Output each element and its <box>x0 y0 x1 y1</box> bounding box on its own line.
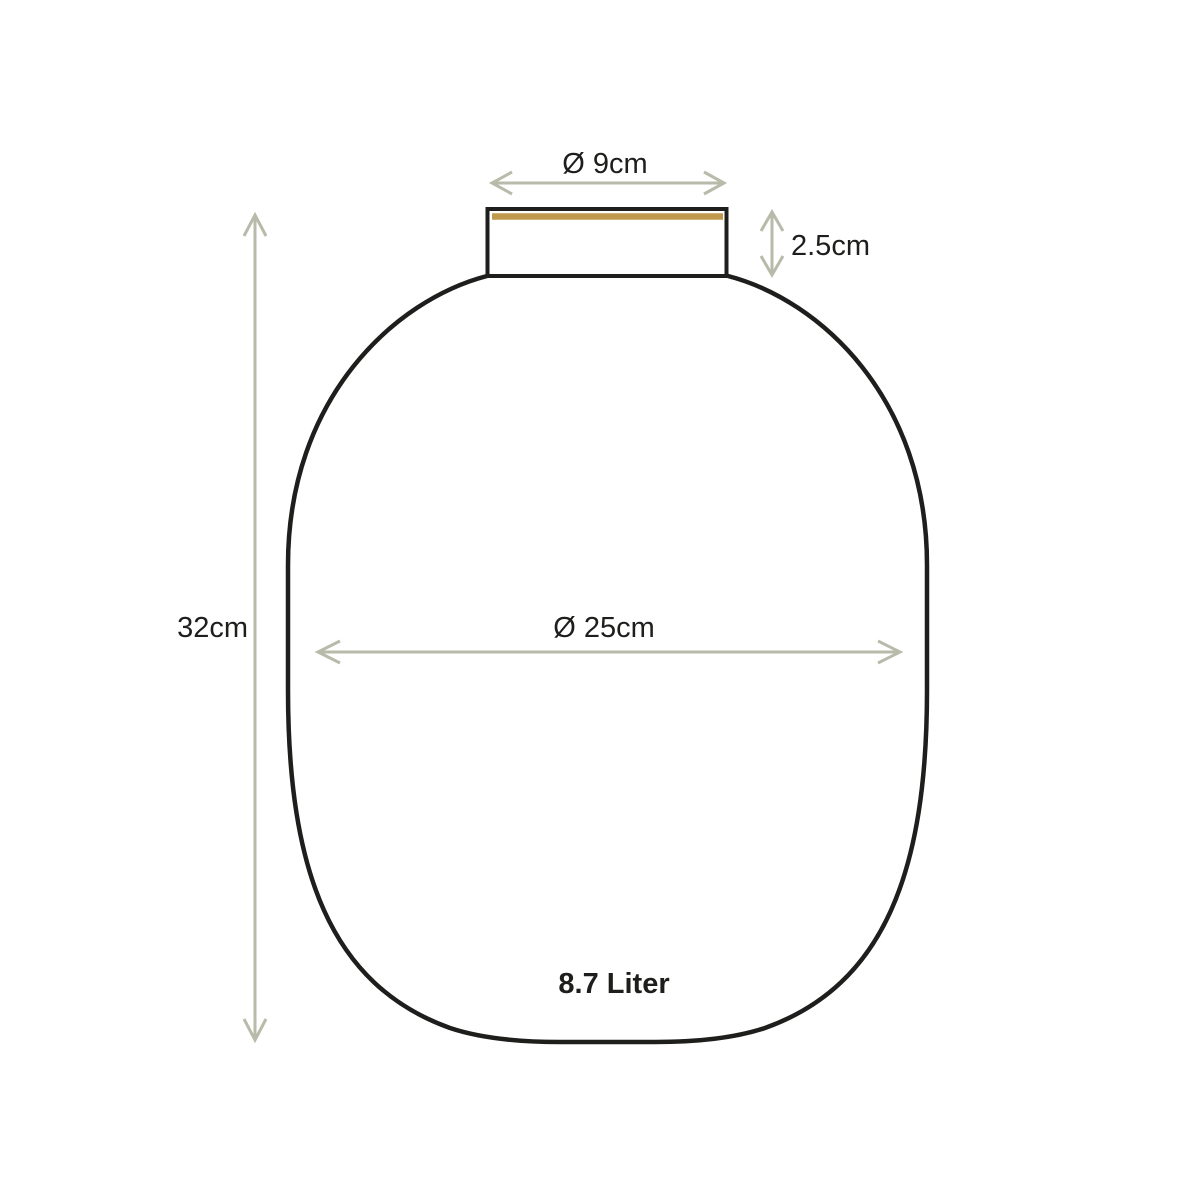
opening-diameter-label: Ø 9cm <box>562 148 647 180</box>
diagram-canvas: Ø 9cm 2.5cm 32cm Ø 25cm 8.7 Liter <box>0 0 1200 1200</box>
neck-height-arrow <box>761 212 783 275</box>
neck-height-label: 2.5cm <box>791 230 870 262</box>
body-diameter-label: Ø 25cm <box>553 612 655 644</box>
body-diameter-arrow <box>318 641 900 663</box>
vase-dimension-diagram: Ø 9cm 2.5cm 32cm Ø 25cm 8.7 Liter <box>0 0 1200 1200</box>
volume-label: 8.7 Liter <box>558 968 669 1000</box>
total-height-label: 32cm <box>177 612 248 644</box>
vase-body-outline <box>288 276 927 1042</box>
